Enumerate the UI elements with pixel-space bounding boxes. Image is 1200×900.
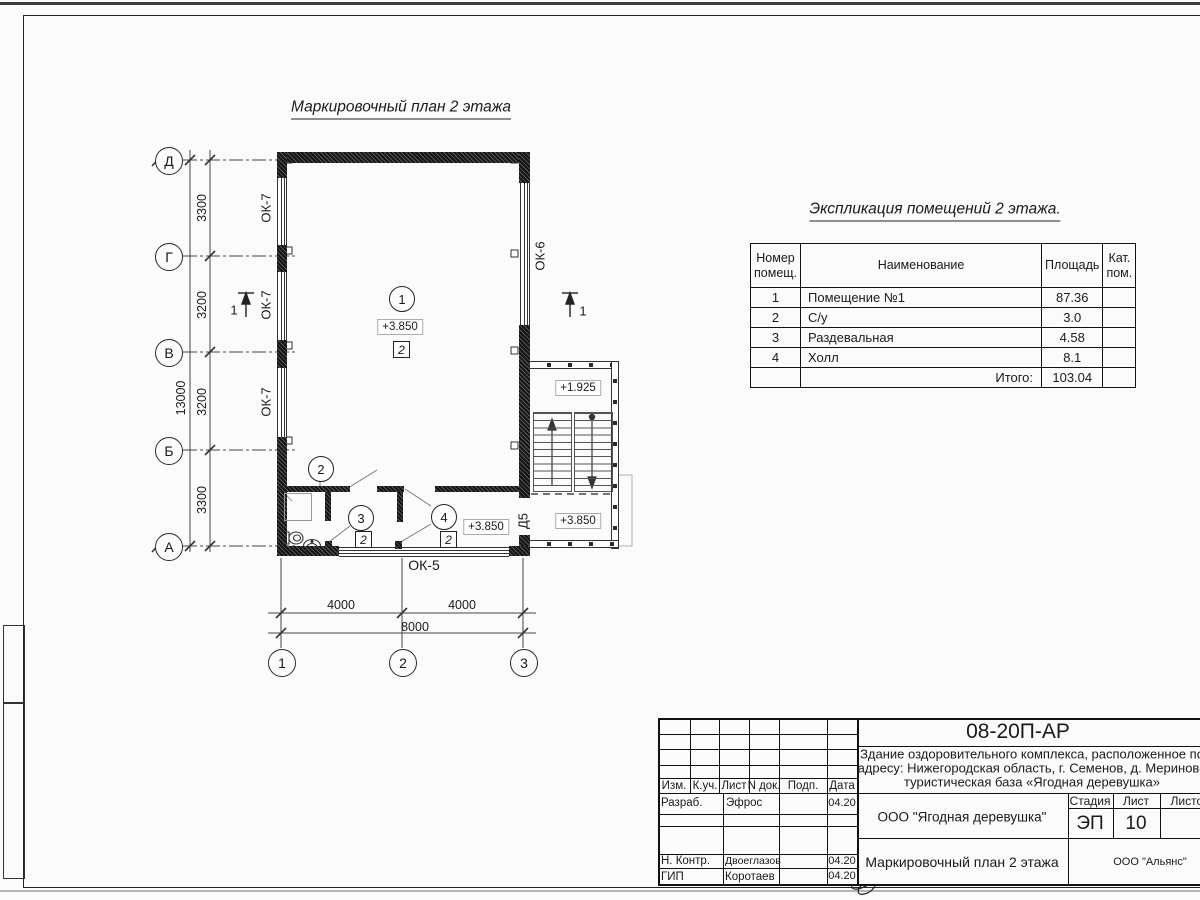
partition-2-v bbox=[397, 492, 403, 522]
cell-cat bbox=[1103, 348, 1136, 368]
dim-left-1: 3300 bbox=[195, 194, 209, 222]
wall-left-pier-v bbox=[277, 340, 287, 368]
annex-wall-bottom bbox=[529, 540, 619, 548]
window-ok6 bbox=[520, 183, 530, 325]
dim-left-total: 13000 bbox=[174, 381, 188, 416]
tb-sheet-label: Лист bbox=[1123, 794, 1149, 808]
cell-name: Помещение №1 bbox=[801, 288, 1042, 308]
tb-sheet-value: 10 bbox=[1125, 813, 1146, 835]
wall-top bbox=[277, 152, 530, 163]
cell-cat bbox=[1103, 308, 1136, 328]
window-ok7-2 bbox=[277, 272, 287, 340]
tb-date-gip: 04.20 bbox=[828, 870, 856, 882]
col-header-name: Наименование bbox=[801, 244, 1042, 288]
cell-empty bbox=[1103, 368, 1136, 388]
door-label-d5: Д5 bbox=[516, 513, 531, 529]
tb-project-line2: адресу: Нижегородская область, г. Семено… bbox=[858, 761, 1200, 776]
finish-marker-room4-text: 2 bbox=[445, 533, 452, 547]
wall-right-pier-top bbox=[519, 152, 530, 183]
partition-3-h bbox=[435, 486, 519, 492]
window-ok7-3 bbox=[277, 368, 287, 437]
col-header-cat: Кат. пом. bbox=[1103, 244, 1136, 288]
axis-circle-v: В bbox=[155, 339, 183, 367]
room-circle-4: 4 bbox=[431, 504, 457, 530]
finish-marker-room4: 2 bbox=[440, 531, 457, 548]
axis-label-a: А bbox=[164, 539, 173, 555]
tb-role-razrab: Разраб. bbox=[661, 797, 702, 809]
section-mark-left: 1 bbox=[230, 303, 237, 318]
drawing-sheet: Маркировочный план 2 этажа Экспликация п… bbox=[0, 0, 1200, 900]
table-row: 1 Помещение №1 87.36 bbox=[751, 288, 1136, 308]
window-ok5 bbox=[339, 547, 509, 557]
room-number-2: 2 bbox=[317, 462, 324, 477]
shower-tray bbox=[284, 493, 312, 521]
tb-role-nkontr: Н. Контр. bbox=[661, 855, 710, 867]
axis-label-1: 1 bbox=[278, 655, 286, 671]
partition-1-h bbox=[277, 486, 350, 492]
tb-col-izm: Изм. bbox=[662, 780, 687, 792]
cell-cat bbox=[1103, 288, 1136, 308]
tb-vline bbox=[690, 718, 691, 794]
cell-num: 4 bbox=[751, 348, 801, 368]
axis-circle-a: А bbox=[155, 533, 183, 561]
tb-hline bbox=[857, 838, 1200, 839]
tb-date-nkontr: 04.20 bbox=[828, 855, 856, 867]
total-value: 103.04 bbox=[1042, 368, 1103, 388]
cell-empty bbox=[751, 368, 801, 388]
axis-label-d: Д bbox=[164, 153, 173, 169]
axis-circle-1: 1 bbox=[268, 649, 296, 677]
cell-area: 3.0 bbox=[1042, 308, 1103, 328]
room-number-4: 4 bbox=[440, 510, 447, 525]
tb-doc-number: 08-20П-АР bbox=[966, 720, 1070, 744]
cell-name: Раздевальная bbox=[801, 328, 1042, 348]
cell-name: С/у bbox=[801, 308, 1042, 328]
axis-circle-d: Д bbox=[155, 147, 183, 175]
door-post-2 bbox=[395, 541, 402, 549]
tb-name-razrab: Эфрос bbox=[726, 797, 762, 809]
elevation-stair-upper: +1.925 bbox=[555, 380, 601, 396]
table-row: 4 Холл 8.1 bbox=[751, 348, 1136, 368]
annex-wall-top bbox=[529, 361, 619, 369]
tb-col-list: Лист bbox=[722, 780, 747, 792]
tb-col-data: Дата bbox=[829, 780, 854, 792]
dim-bottom-2: 4000 bbox=[448, 598, 476, 612]
dim-bottom-1: 4000 bbox=[327, 598, 355, 612]
wall-left-pier-d bbox=[277, 152, 287, 178]
axis-label-g: Г bbox=[165, 249, 173, 265]
stair-flight-down bbox=[574, 412, 613, 492]
explication-total-row: Итого: 103.04 bbox=[751, 368, 1136, 388]
tb-vline bbox=[719, 718, 720, 794]
window-label-ok5: ОК-5 bbox=[408, 557, 440, 573]
cell-num: 3 bbox=[751, 328, 801, 348]
finish-marker-room1: 2 bbox=[393, 341, 410, 358]
elevation-main: +3.850 bbox=[377, 319, 423, 335]
cell-num: 1 bbox=[751, 288, 801, 308]
stair-flight-up bbox=[533, 412, 572, 492]
axis-circle-g: Г bbox=[155, 243, 183, 271]
dim-left-2: 3200 bbox=[195, 291, 209, 319]
tb-col-podp: Подп. bbox=[788, 780, 819, 792]
tb-name-nkontr: Двоеглазов bbox=[725, 855, 781, 867]
axis-label-v: В bbox=[164, 345, 173, 361]
axis-label-3: 3 bbox=[520, 655, 528, 671]
tb-role-gip: ГИП bbox=[661, 871, 684, 883]
tb-org-name: ООО "Альянс" bbox=[1113, 856, 1187, 868]
partition-1-v bbox=[325, 492, 331, 521]
axis-circle-2: 2 bbox=[389, 649, 417, 677]
elevation-stair-lower: +3.850 bbox=[555, 513, 601, 529]
window-label-ok7-1: ОК-7 bbox=[259, 193, 274, 222]
axis-label-2: 2 bbox=[399, 655, 407, 671]
finish-marker-room1-text: 2 bbox=[398, 343, 405, 357]
room-number-3: 3 bbox=[357, 511, 364, 526]
tb-col-ndok: N док. bbox=[748, 780, 781, 792]
room-number-1: 1 bbox=[398, 292, 405, 307]
wall-bottom-right-pier bbox=[509, 546, 530, 556]
cell-area: 87.36 bbox=[1042, 288, 1103, 308]
section-mark-right: 1 bbox=[579, 304, 586, 319]
tb-vline bbox=[1160, 793, 1161, 838]
axis-label-b: Б bbox=[164, 443, 173, 459]
window-label-ok6: ОК-6 bbox=[533, 241, 548, 270]
dim-bottom-total: 8000 bbox=[401, 620, 429, 634]
finish-marker-room3: 2 bbox=[355, 531, 372, 548]
finish-marker-room3-text: 2 bbox=[360, 533, 367, 547]
elevation-room4: +3.850 bbox=[463, 519, 509, 535]
col-header-num: Номер помещ. bbox=[751, 244, 801, 288]
tb-name-gip: Коротаев bbox=[725, 871, 775, 883]
cell-num: 2 bbox=[751, 308, 801, 328]
cell-area: 8.1 bbox=[1042, 348, 1103, 368]
tb-hline bbox=[1068, 808, 1200, 809]
wall-right-mid bbox=[519, 325, 530, 498]
tb-drawing-name: Маркировочный план 2 этажа bbox=[865, 854, 1058, 870]
table-row: 2 С/у 3.0 bbox=[751, 308, 1136, 328]
tb-hline bbox=[658, 793, 1200, 794]
tb-date-razrab: 04.20 bbox=[828, 797, 856, 809]
dim-left-3: 3200 bbox=[195, 388, 209, 416]
tb-vline bbox=[857, 718, 859, 886]
axis-circle-3: 3 bbox=[510, 649, 538, 677]
cell-area: 4.58 bbox=[1042, 328, 1103, 348]
total-label: Итого: bbox=[801, 368, 1042, 388]
dim-left-4: 3300 bbox=[195, 486, 209, 514]
room-circle-2: 2 bbox=[308, 456, 334, 482]
axis-circle-b: Б bbox=[155, 437, 183, 465]
col-header-area: Площадь bbox=[1042, 244, 1103, 288]
explication-header-row: Номер помещ. Наименование Площадь Кат. п… bbox=[751, 244, 1136, 288]
tb-vline bbox=[1113, 793, 1114, 838]
tb-stage-label: Стадия bbox=[1070, 794, 1111, 808]
tb-col-kuch: К.уч. bbox=[693, 780, 718, 792]
room-circle-1: 1 bbox=[389, 286, 415, 312]
explication-table: Номер помещ. Наименование Площадь Кат. п… bbox=[750, 243, 1136, 388]
cell-name: Холл bbox=[801, 348, 1042, 368]
tb-company: ООО "Ягодная деревушка" bbox=[878, 810, 1047, 825]
wall-left-pier-g bbox=[277, 245, 287, 272]
cell-cat bbox=[1103, 328, 1136, 348]
room-circle-3: 3 bbox=[348, 505, 374, 531]
table-row: 3 Раздевальная 4.58 bbox=[751, 328, 1136, 348]
door-post-1 bbox=[325, 541, 332, 549]
tb-stage-value: ЭП bbox=[1076, 813, 1103, 835]
window-label-ok7-3: ОК-7 bbox=[259, 387, 274, 416]
tb-project-line3: туристическая база «Ягодная деревушка» bbox=[904, 775, 1160, 790]
tb-project-line1: Здание оздоровительного комплекса, распо… bbox=[860, 747, 1200, 762]
window-label-ok7-2: ОК-7 bbox=[259, 290, 274, 319]
window-ok7-1 bbox=[277, 178, 287, 245]
tb-sheets-label: Листов bbox=[1171, 794, 1200, 808]
